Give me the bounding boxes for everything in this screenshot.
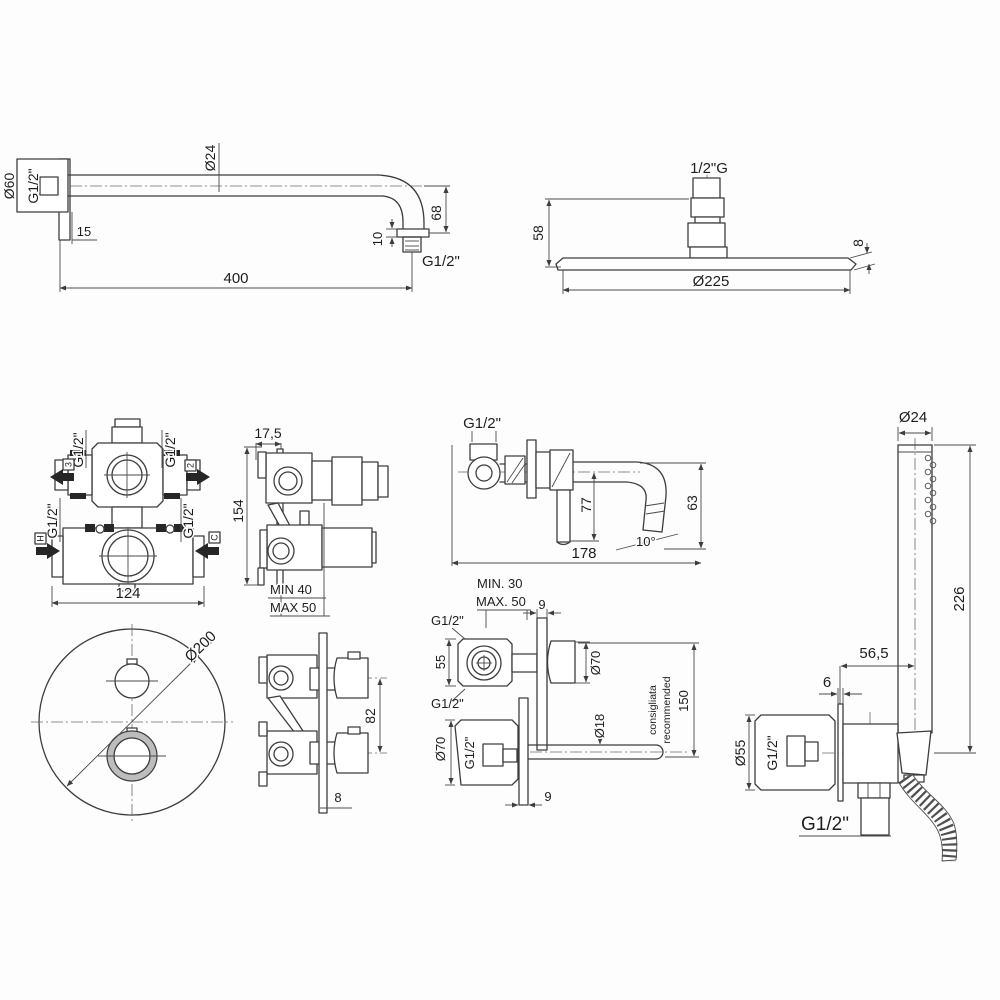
valve-depth-label: 17,5 <box>254 425 281 441</box>
spoutsec-tube-diameter-label: Ø18 <box>592 714 607 739</box>
outlet-offset-label: 56,5 <box>859 645 888 662</box>
spoutsec-thread-label: G1/2" <box>462 736 477 769</box>
arm-length-label: 400 <box>223 270 248 287</box>
outlet-plate-thickness-label: 6 <box>823 674 831 691</box>
outlet-thread-bottom-label: G1/2" <box>801 814 849 835</box>
spoutsec-note-english: recommended <box>661 676 673 743</box>
hand-shower-length-label: 226 <box>951 586 968 611</box>
head-thread-label: 1/2"G <box>690 160 728 177</box>
figure-shower-head: 1/2"G 58 8 Ø225 <box>530 160 875 294</box>
head-diameter-label: Ø225 <box>693 273 730 290</box>
mixer-thread-bottom-label: G1/2" <box>431 696 464 711</box>
flexible-hose <box>898 774 957 861</box>
spoutsec-recommended-distance-label: 150 <box>676 690 691 712</box>
arm-flange-diameter-label: Ø60 <box>1 173 17 200</box>
wall-depth-min-label: MIN. 30 <box>477 576 523 591</box>
figure-plate-side: 82 8 <box>259 633 387 813</box>
spout-handle-drop-label: 77 <box>578 497 594 513</box>
hand-shower-bead-chain <box>925 455 936 524</box>
outlet-thread-side-label: G1/2" <box>764 735 780 770</box>
technical-drawing-page: Ø60 G1/2" Ø24 15 10 68 G1/2" 400 1/2"G <box>0 0 1000 1000</box>
figure-valve-front: G1/2" G1/2" G1/2" G1/2" 3 2 H C 124 <box>35 419 220 607</box>
spout-drop-label: 63 <box>684 495 700 511</box>
arm-tube-diameter-label: Ø24 <box>202 145 218 172</box>
figure-shower-arm: Ø60 G1/2" Ø24 15 10 68 G1/2" 400 <box>1 143 460 292</box>
spoutsec-plate-thickness-label: 9 <box>544 789 551 804</box>
valve-max-depth-label: MAX 50 <box>270 600 316 615</box>
spout-thread-label: G1/2" <box>463 415 501 432</box>
valve-port-hot-tag: H <box>36 535 46 542</box>
plate-thickness-label: 8 <box>334 790 341 805</box>
valve-height-label: 154 <box>230 499 246 523</box>
spoutsec-note-italian: consigliata <box>647 685 659 735</box>
figure-plate-front: Ø200 <box>31 624 233 821</box>
valve-thread-bottom-right-label: G1/2" <box>180 503 196 538</box>
head-height-label: 58 <box>530 225 546 241</box>
figure-spout-side: G1/2" 77 63 10° 178 <box>452 415 706 566</box>
outlet-flange-diameter-label: Ø55 <box>732 740 748 767</box>
spout-angle-label: 10° <box>636 534 656 549</box>
wall-depth-note: MIN. 30 MAX. 50 <box>476 576 531 628</box>
spout-reach-label: 178 <box>571 545 596 562</box>
mixer-height-label: 55 <box>433 655 448 669</box>
valve-port-3-tag: 3 <box>64 462 74 467</box>
arm-outlet-thread-label: G1/2" <box>422 253 460 270</box>
spoutsec-flange-diameter-label: Ø70 <box>433 737 448 762</box>
mixer-thread-top-label: G1/2" <box>431 613 464 628</box>
arm-nut-height-label: 10 <box>370 232 385 246</box>
valve-width-label: 124 <box>115 585 140 602</box>
hand-shower-diameter-label: Ø24 <box>899 409 927 426</box>
figure-hand-shower: Ø24 226 56,5 6 G1/2" Ø55 <box>732 409 976 861</box>
head-thickness-label: 8 <box>850 239 866 247</box>
valve-thread-top-right-label: G1/2" <box>162 432 178 467</box>
figure-valve-side: 17,5 MIN 40 MAX 50 154 <box>230 425 388 616</box>
valve-port-cold-tag: C <box>210 534 220 541</box>
arm-inlet-thread-label: G1/2" <box>25 168 41 203</box>
mixer-knob-diameter-label: Ø70 <box>588 651 603 676</box>
valve-min-depth-label: MIN 40 <box>270 582 312 597</box>
mixer-plate-thickness-label: 9 <box>538 597 545 612</box>
valve-port-2-tag: 2 <box>186 463 196 468</box>
arm-drop-label: 68 <box>428 205 444 221</box>
shower-system-technical-drawing: Ø60 G1/2" Ø24 15 10 68 G1/2" 400 1/2"G <box>0 0 1000 1000</box>
wall-depth-max-label: MAX. 50 <box>476 594 526 609</box>
plate-knob-centers-label: 82 <box>362 708 378 724</box>
arm-offset-label: 15 <box>77 224 91 239</box>
